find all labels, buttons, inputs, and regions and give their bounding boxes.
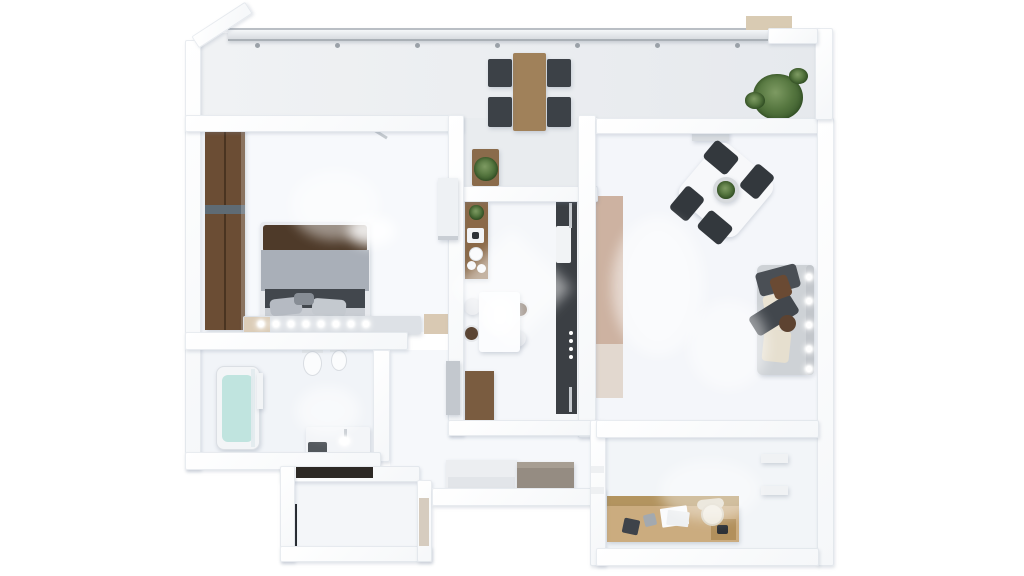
entrance-wall-shelf[interactable] [296,467,373,478]
counter-stove-dot [472,232,479,239]
counter-knob [569,355,573,359]
sofa-light [806,322,812,328]
railing-post [255,43,260,48]
counter-handle [569,387,572,412]
bathtub-water [222,375,253,442]
wall-living-bottom [596,420,819,438]
towel-bar[interactable] [257,373,263,409]
balcony-chair-nw[interactable] [488,59,512,87]
counter-knob [569,339,573,343]
headboard-light [363,321,369,327]
sofa-light [806,346,812,352]
bedroom-door-leaf[interactable] [446,361,460,415]
wall-left [185,40,201,470]
hall-wall-shelf [591,487,604,494]
hallway-sideboard-ribs [448,477,515,488]
kitchen-table[interactable] [479,292,520,352]
sink-faucet-glow [340,437,349,445]
counter-bowl [467,261,476,270]
counter-knob [569,347,573,351]
headboard-light [258,321,264,327]
bed-pillow-right [311,298,346,317]
bedroom-wall-panel[interactable] [438,178,458,240]
balcony-chair-sw[interactable] [488,97,512,127]
headboard-light [318,321,324,327]
bed-pillow-mid [294,293,314,305]
living-cabinet-tan[interactable] [596,196,623,344]
sofa-back [806,265,814,375]
sofa-light [806,366,812,372]
wall-living-left [578,115,596,438]
hall-wall-shelf [591,466,604,473]
balcony-plant-stand-plant[interactable] [474,157,498,181]
floor-entrance [295,482,417,546]
centerpiece-plant [717,181,735,199]
headboard-light [273,321,279,327]
toilet-bowl[interactable] [303,351,322,376]
wall-hallway-bottom [432,488,606,506]
wall-kitchen-bottom [448,420,598,436]
floorplan-canvas [0,0,1024,576]
balcony-potted-plant-leaves [745,92,765,109]
desk-paper [666,510,690,528]
bathtub-glass-screen [251,369,255,447]
desk-item-dark[interactable] [622,518,641,536]
railing-post [335,43,340,48]
railing-post [655,43,660,48]
balcony-chair-ne[interactable] [547,59,571,87]
wardrobe-edge-highlight [241,127,245,330]
railing-post [415,43,420,48]
wardrobe-strap [205,205,245,214]
sofa-pillow-round [779,315,796,332]
railing-post [735,43,740,48]
counter-plant-pot[interactable] [469,205,484,220]
wall-bedroom-top [185,115,463,132]
hallway-storage-box-top [517,462,574,468]
wardrobe-divider [224,127,226,330]
balcony-potted-plant-leaves [789,68,808,84]
living-cabinet-tan-lower[interactable] [596,344,623,398]
sofa-cushion-bottom [761,329,791,364]
sofa-light [806,274,812,280]
wall-bathroom-right [373,350,390,462]
kitchen-corner-cabinet[interactable] [465,371,494,420]
bed-blanket-fold [263,225,367,252]
wall-kitchen-top [448,186,598,202]
bed-blanket-plaid [261,250,369,291]
wall-bedroom-bottom [185,332,408,350]
headboard-light [348,321,354,327]
bidet-bowl[interactable] [331,350,347,371]
sofa-light [806,298,812,304]
counter-handle [569,203,572,228]
railing-post [575,43,580,48]
headboard-light [333,321,339,327]
balcony-table[interactable] [513,53,546,131]
headboard-light [288,321,294,327]
office-chair[interactable] [701,503,724,526]
wall-top-right-block [768,28,818,44]
kitchen-chair-sw[interactable] [463,325,480,342]
office-wall-shelf-lower[interactable] [761,486,788,495]
wall-living-top [596,118,819,134]
bedroom-corner-block[interactable] [424,314,448,334]
counter-knob [569,331,573,335]
counter-bowl [477,264,486,273]
railing-post [495,43,500,48]
wall-right [817,118,834,566]
balcony-chair-se[interactable] [547,97,571,127]
wall-office-bottom [596,548,819,566]
entrance-wall-accent [419,498,429,546]
counter-sink-cutout [556,226,571,263]
desk-drawer-hole [717,525,728,534]
wall-entrance-bottom [280,546,432,562]
headboard-light [303,321,309,327]
counter-plate [469,247,483,261]
balcony-railing [228,28,768,41]
office-wall-shelf-upper[interactable] [761,454,788,463]
bedroom-wall-panel-edge [438,236,458,240]
